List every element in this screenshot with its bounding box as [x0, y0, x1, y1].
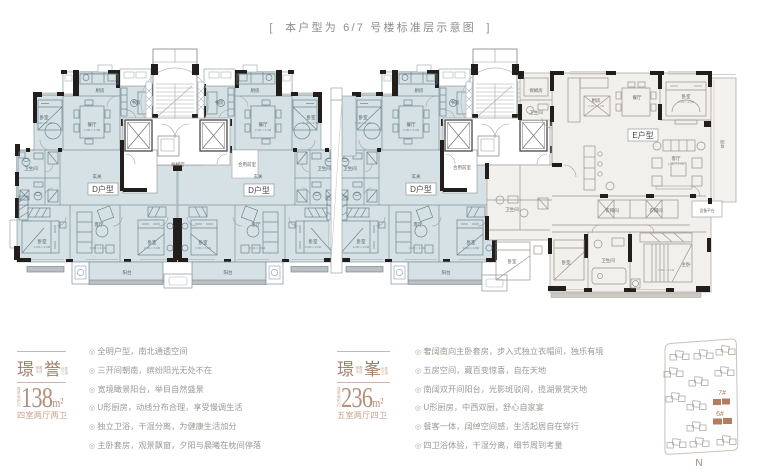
svg-text:卧室: 卧室 [359, 114, 368, 121]
svg-text:3.3M x 3.9M: 3.3M x 3.9M [84, 128, 101, 132]
svg-text:客厅: 客厅 [252, 221, 261, 228]
svg-text:3.3M x 3.8M: 3.3M x 3.8M [195, 246, 212, 250]
svg-text:卫生间: 卫生间 [343, 165, 357, 172]
svg-text:卧室: 卧室 [357, 238, 366, 245]
svg-text:卫生间: 卫生间 [24, 165, 38, 172]
svg-text:玄关: 玄关 [254, 173, 263, 180]
svg-text:3.0M x 3.6M: 3.0M x 3.6M [34, 245, 51, 249]
svg-text:卧室: 卧室 [467, 239, 476, 246]
svg-text:阳台: 阳台 [224, 269, 233, 276]
svg-text:客厅: 客厅 [672, 155, 681, 162]
svg-text:阳台: 阳台 [123, 269, 132, 276]
svg-text:餐厅: 餐厅 [88, 121, 97, 128]
svg-text:3.3M x 3.9M: 3.3M x 3.9M [403, 128, 420, 132]
svg-text:3.3M x 3.9M: 3.3M x 3.9M [255, 128, 272, 132]
svg-text:卧室: 卧室 [38, 238, 47, 245]
svg-text:4.0M x 3.6M: 4.0M x 3.6M [658, 268, 675, 272]
svg-text:卧室: 卧室 [508, 258, 517, 265]
svg-text:6.1M x 4.5M: 6.1M x 4.5M [668, 162, 685, 166]
svg-text:6#: 6# [716, 411, 724, 418]
svg-text:D户型: D户型 [410, 184, 432, 194]
svg-text:厨房: 厨房 [415, 87, 424, 94]
svg-text:N: N [695, 458, 702, 469]
svg-text:3.1M x 3.6M: 3.1M x 3.6M [409, 246, 426, 250]
svg-text:D户型: D户型 [92, 184, 114, 194]
svg-text:3.1M x 3.4M: 3.1M x 3.4M [36, 121, 53, 125]
svg-text:卧室: 卧室 [307, 114, 316, 121]
svg-text:阳台: 阳台 [721, 138, 726, 149]
svg-text:D户型: D户型 [248, 185, 270, 195]
svg-text:书房: 书房 [132, 99, 141, 106]
svg-text:3.3M x 3.8M: 3.3M x 3.8M [463, 246, 480, 250]
svg-text:3.1M x 3.4M: 3.1M x 3.4M [303, 121, 320, 125]
svg-text:玄关: 玄关 [412, 173, 421, 180]
svg-text:保姆房: 保姆房 [529, 87, 543, 94]
svg-text:卧室: 卧室 [148, 239, 157, 246]
svg-text:设备平台: 设备平台 [699, 208, 714, 213]
svg-text:客厅: 客厅 [95, 221, 104, 228]
svg-text:卧室: 卧室 [40, 114, 49, 121]
svg-text:厨房: 厨房 [251, 87, 260, 94]
svg-text:卧室: 卧室 [309, 238, 318, 245]
svg-text:3.3M x 3.8M: 3.3M x 3.8M [144, 246, 161, 250]
svg-text:卫生间: 卫生间 [601, 257, 615, 264]
svg-text:书房: 书房 [215, 99, 224, 106]
svg-text:主卧: 主卧 [682, 261, 691, 268]
svg-text:3.1M x 3.4M: 3.1M x 3.4M [355, 121, 372, 125]
svg-text:3.3M x 4.2M: 3.3M x 4.2M [588, 104, 605, 108]
svg-text:客厅: 客厅 [414, 221, 423, 228]
svg-text:玄关: 玄关 [93, 173, 102, 180]
svg-text:E户型: E户型 [632, 130, 653, 140]
svg-text:卫生间: 卫生间 [529, 109, 543, 116]
svg-text:餐厅: 餐厅 [407, 121, 416, 128]
svg-text:厨房: 厨房 [592, 97, 601, 104]
svg-text:3.1M x 3.6M: 3.1M x 3.6M [249, 246, 266, 250]
svg-text:3.0M x 3.6M: 3.0M x 3.6M [353, 245, 370, 249]
svg-text:7#: 7# [718, 390, 726, 397]
svg-text:衣帽间: 衣帽间 [649, 207, 663, 214]
svg-text:餐厅: 餐厅 [633, 94, 642, 101]
svg-text:衣帽间: 衣帽间 [605, 207, 619, 214]
svg-text:3.5M x 3.8M: 3.5M x 3.8M [678, 100, 695, 104]
svg-text:候梯厅: 候梯厅 [171, 161, 185, 168]
svg-text:卧室: 卧室 [682, 93, 691, 100]
svg-text:阳台: 阳台 [442, 269, 451, 276]
svg-text:厨房: 厨房 [96, 87, 105, 94]
svg-text:合用前室: 合用前室 [238, 161, 256, 168]
svg-text:3.1M x 3.6M: 3.1M x 3.6M [90, 246, 107, 250]
svg-text:书房: 书房 [451, 99, 460, 106]
svg-text:3.0M x 3.6M: 3.0M x 3.6M [305, 245, 322, 249]
svg-text:餐厅: 餐厅 [259, 121, 268, 128]
svg-text:卧室: 卧室 [199, 239, 208, 246]
svg-text:合用前室: 合用前室 [453, 164, 471, 171]
svg-text:卧室: 卧室 [562, 259, 571, 266]
svg-text:卫生间: 卫生间 [505, 206, 519, 213]
svg-text:卫生间: 卫生间 [317, 165, 331, 172]
